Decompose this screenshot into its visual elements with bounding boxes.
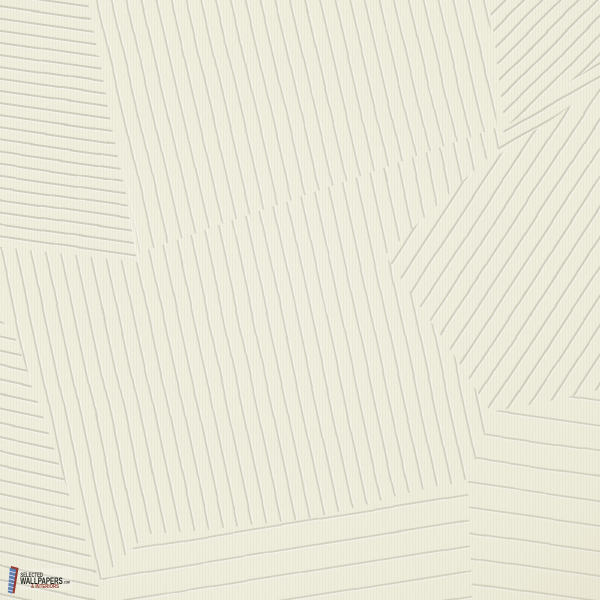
svg-text:.COM: .COM bbox=[63, 580, 70, 585]
svg-text:& INTERIORS: & INTERIORS bbox=[31, 584, 59, 590]
